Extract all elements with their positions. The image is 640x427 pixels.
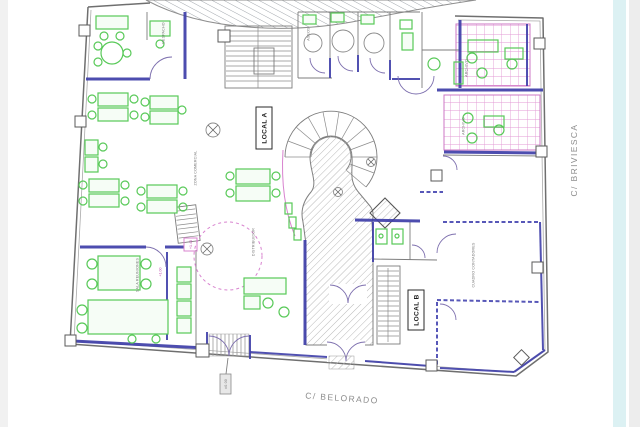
toilet-bowl-icon	[364, 33, 384, 53]
room-label-zone: ZONA COMERCIAL	[194, 151, 198, 186]
room-label-distribuidor: DISTRIBUIDOR	[252, 228, 256, 256]
room-label-office: DESPACHO	[162, 22, 166, 44]
right-cyan-strip	[613, 0, 626, 427]
room-label-meeting: SALA REUNIONES	[136, 258, 140, 293]
room-label-counters: CUADRO CONTADORES	[472, 242, 476, 287]
pink-tile-room-2	[444, 95, 540, 150]
right-gray-strip	[629, 0, 640, 427]
elevation-entry-label: ±0.00	[224, 379, 228, 389]
room-label-archive2: ARCHIVO	[462, 117, 466, 135]
elevation-a-label: +1.40	[189, 240, 193, 249]
left-edge-strip	[0, 0, 8, 427]
local-b-label: LOCAL B	[414, 294, 421, 326]
elevation-b-label: +1.00	[159, 267, 163, 276]
local-a-label: LOCAL A	[262, 112, 269, 143]
local-b-tag: LOCAL B	[408, 290, 424, 330]
floor-plan-svg: LOCAL A LOCAL B C/ BRIVIESCA C/ BELORADO…	[0, 0, 640, 427]
toilet-bowl-icon	[332, 30, 354, 52]
floor-plan-screenshot: LOCAL A LOCAL B C/ BRIVIESCA C/ BELORADO…	[0, 0, 640, 427]
room-label-wc: ASEOS	[307, 27, 311, 41]
street-briviesca-label: C/ BRIVIESCA	[569, 123, 579, 196]
local-a-tag: LOCAL A	[256, 107, 272, 149]
room-label-archive1: ARCHIVO	[465, 59, 469, 77]
